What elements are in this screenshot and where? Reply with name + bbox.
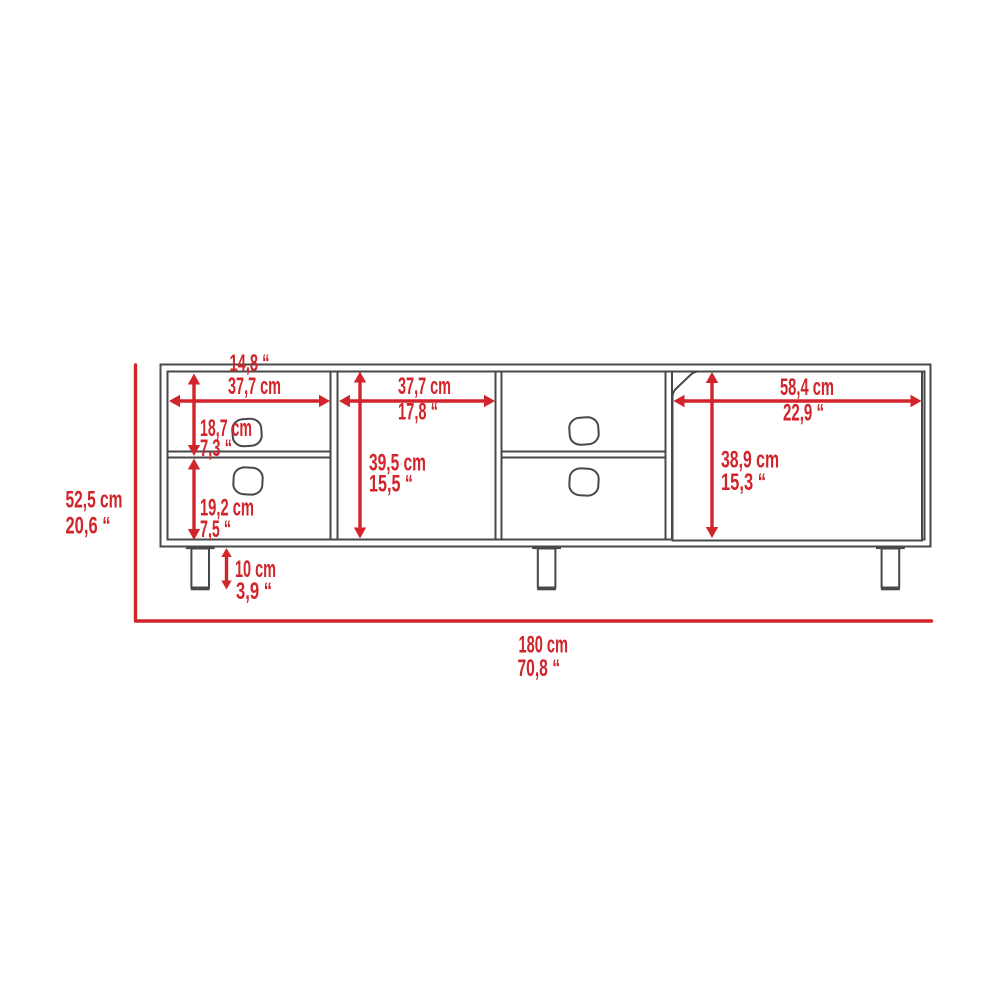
svg-text:22,9 “: 22,9 “	[783, 400, 824, 427]
svg-text:37,7 cm: 37,7 cm	[398, 373, 451, 400]
svg-text:70,8 “: 70,8 “	[518, 655, 561, 682]
svg-text:20,6 “: 20,6 “	[66, 513, 111, 540]
svg-text:3,9 “: 3,9 “	[236, 578, 272, 605]
svg-text:7,5 “: 7,5 “	[200, 516, 231, 543]
svg-text:58,4 cm: 58,4 cm	[780, 374, 834, 401]
svg-text:15,5 “: 15,5 “	[369, 471, 413, 498]
svg-text:17,8 “: 17,8 “	[398, 399, 438, 426]
svg-text:52,5 cm: 52,5 cm	[66, 487, 123, 514]
svg-text:15,3 “: 15,3 “	[721, 469, 766, 496]
svg-text:7,3 “: 7,3 “	[200, 435, 232, 462]
svg-text:37,7 cm: 37,7 cm	[228, 373, 281, 400]
